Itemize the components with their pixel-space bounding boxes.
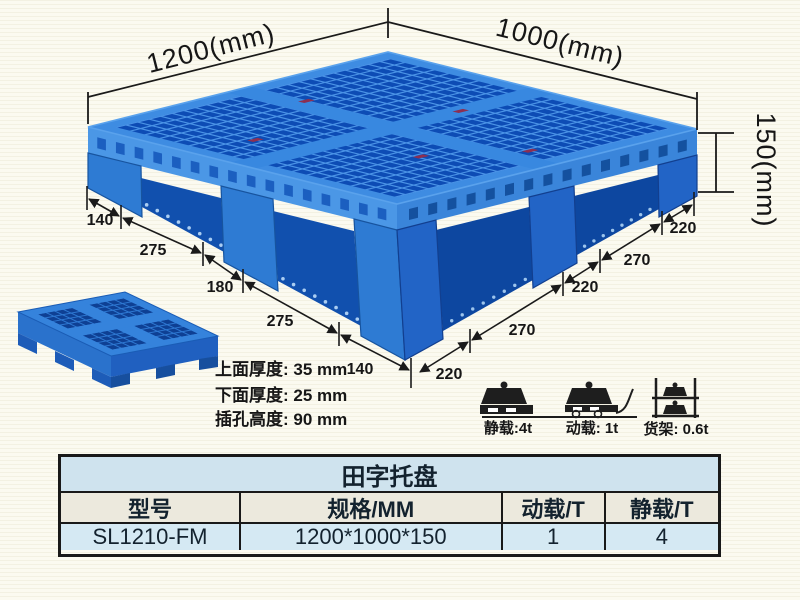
pallet-bottom-rail [436,207,533,331]
pallet-bottom-rail [141,178,224,252]
spec-top-thickness: 上面厚度: 35 mm [215,359,347,379]
pallet-foot [221,186,278,291]
dim-label-1000: 1000(mm) [493,12,627,73]
left-chain-label-3: 275 [267,313,294,330]
header-static-load: 静载/T [604,493,718,522]
right-chain-label-1: 270 [509,322,536,339]
right-chain-label-0: 220 [436,366,463,383]
cell-dynamic-load: 1 [501,524,604,550]
header-dynamic-load: 动载/T [501,493,604,522]
left-chain-label-2: 180 [207,279,234,296]
pallet-spec-sheet: 1200(mm) 1000(mm) 150(mm) 140 275 180 27… [0,0,800,600]
pallet-foot [658,155,697,217]
right-chain-label-4: 220 [670,220,697,237]
dim-label-150: 150(mm) [751,112,781,227]
static-load-icon [480,382,533,415]
spec-fork-height: 插孔高度: 90 mm [215,409,347,429]
pallet-bottom-rail [574,175,659,255]
left-chain-label-4: 140 [347,361,374,378]
rack-load-icon [652,378,699,418]
dynamic-load-icon [565,382,633,418]
right-chain-label-2: 220 [572,279,599,296]
small-pallet-illustration [18,292,218,388]
cell-static-load: 4 [604,524,718,550]
dynamic-load-label: 动载: 1t [566,419,619,437]
spec-table: 田字托盘 型号 规格/MM 动载/T 静载/T SL1210-FM 1200*1… [58,454,721,557]
static-load-label: 静载:4t [484,419,532,437]
spec-table-title: 田字托盘 [61,457,718,491]
header-model: 型号 [61,493,239,522]
main-pallet-illustration [88,52,697,360]
left-chain-label-1: 275 [140,242,167,259]
rack-load-label: 货架: 0.6t [643,420,708,438]
pallet-bottom-rail [273,211,361,326]
right-chain-label-3: 270 [624,252,651,269]
dim-label-1200: 1200(mm) [144,18,278,79]
spec-table-data-row: SL1210-FM 1200*1000*150 1 4 [61,522,718,550]
pallet-foot [529,186,577,288]
load-rating-icons [480,378,699,418]
header-spec-mm: 规格/MM [239,493,500,522]
spec-bottom-thickness: 下面厚度: 25 mm [215,385,347,405]
spec-table-header-row: 型号 规格/MM 动载/T 静载/T [61,491,718,522]
cell-spec-mm: 1200*1000*150 [239,524,500,550]
left-chain-label-0: 140 [87,212,114,229]
pallet-foot [397,220,443,360]
cell-model: SL1210-FM [61,524,239,550]
